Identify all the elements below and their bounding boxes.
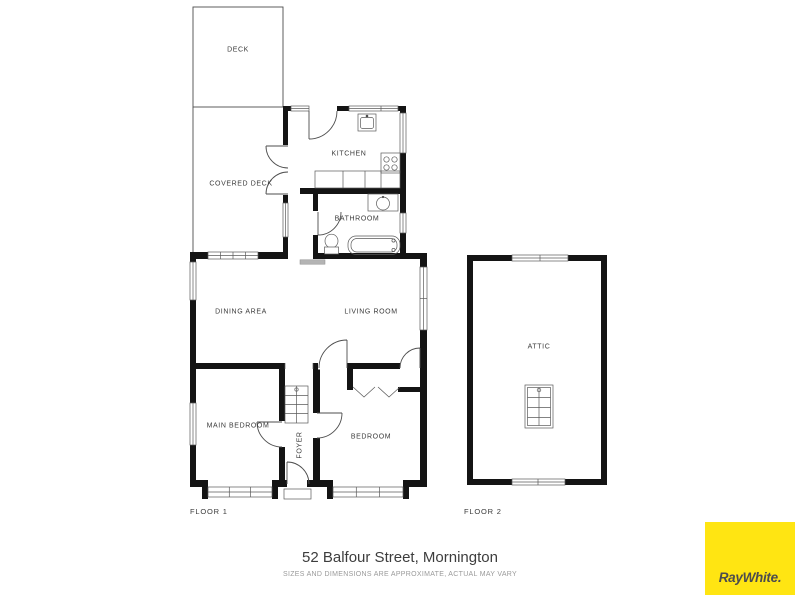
living-room-label: LIVING ROOM xyxy=(344,309,397,316)
property-address: 52 Balfour Street, Mornington xyxy=(0,549,800,566)
dining-area-label: DINING AREA xyxy=(215,309,267,316)
bathroom-fixture-icons xyxy=(325,194,401,255)
main-bedroom-label: MAIN BEDROOM xyxy=(207,423,270,430)
covered-deck-label: COVERED DECK xyxy=(209,181,272,188)
floor1-label: FLOOR 1 xyxy=(190,507,228,516)
bathroom-label: BATHROOM xyxy=(335,216,380,223)
wardrobe-door-icons xyxy=(353,387,400,397)
floor2-label: FLOOR 2 xyxy=(464,507,502,516)
floor-plan-drawing xyxy=(0,0,800,600)
deck-outline xyxy=(193,7,283,258)
disclaimer-text: SIZES AND DIMENSIONS ARE APPROXIMATE, AC… xyxy=(0,571,800,578)
raywhite-logo: RayWhite. xyxy=(705,522,795,595)
attic-stairs-icon xyxy=(525,385,553,428)
floor-plan-page: DECK COVERED DECK KITCHEN BATHROOM DININ… xyxy=(0,0,800,600)
foyer-label: FOYER xyxy=(297,431,304,458)
bedroom-label: BEDROOM xyxy=(351,434,391,441)
attic-label: ATTIC xyxy=(528,344,551,351)
floor2-walls xyxy=(467,255,607,485)
kitchen-label: KITCHEN xyxy=(332,151,367,158)
floor1-walls xyxy=(190,106,427,499)
wall-openings xyxy=(190,106,569,488)
deck-label: DECK xyxy=(227,47,249,54)
raywhite-logo-text: RayWhite. xyxy=(705,570,795,585)
foyer-stairs-icon xyxy=(285,386,308,423)
